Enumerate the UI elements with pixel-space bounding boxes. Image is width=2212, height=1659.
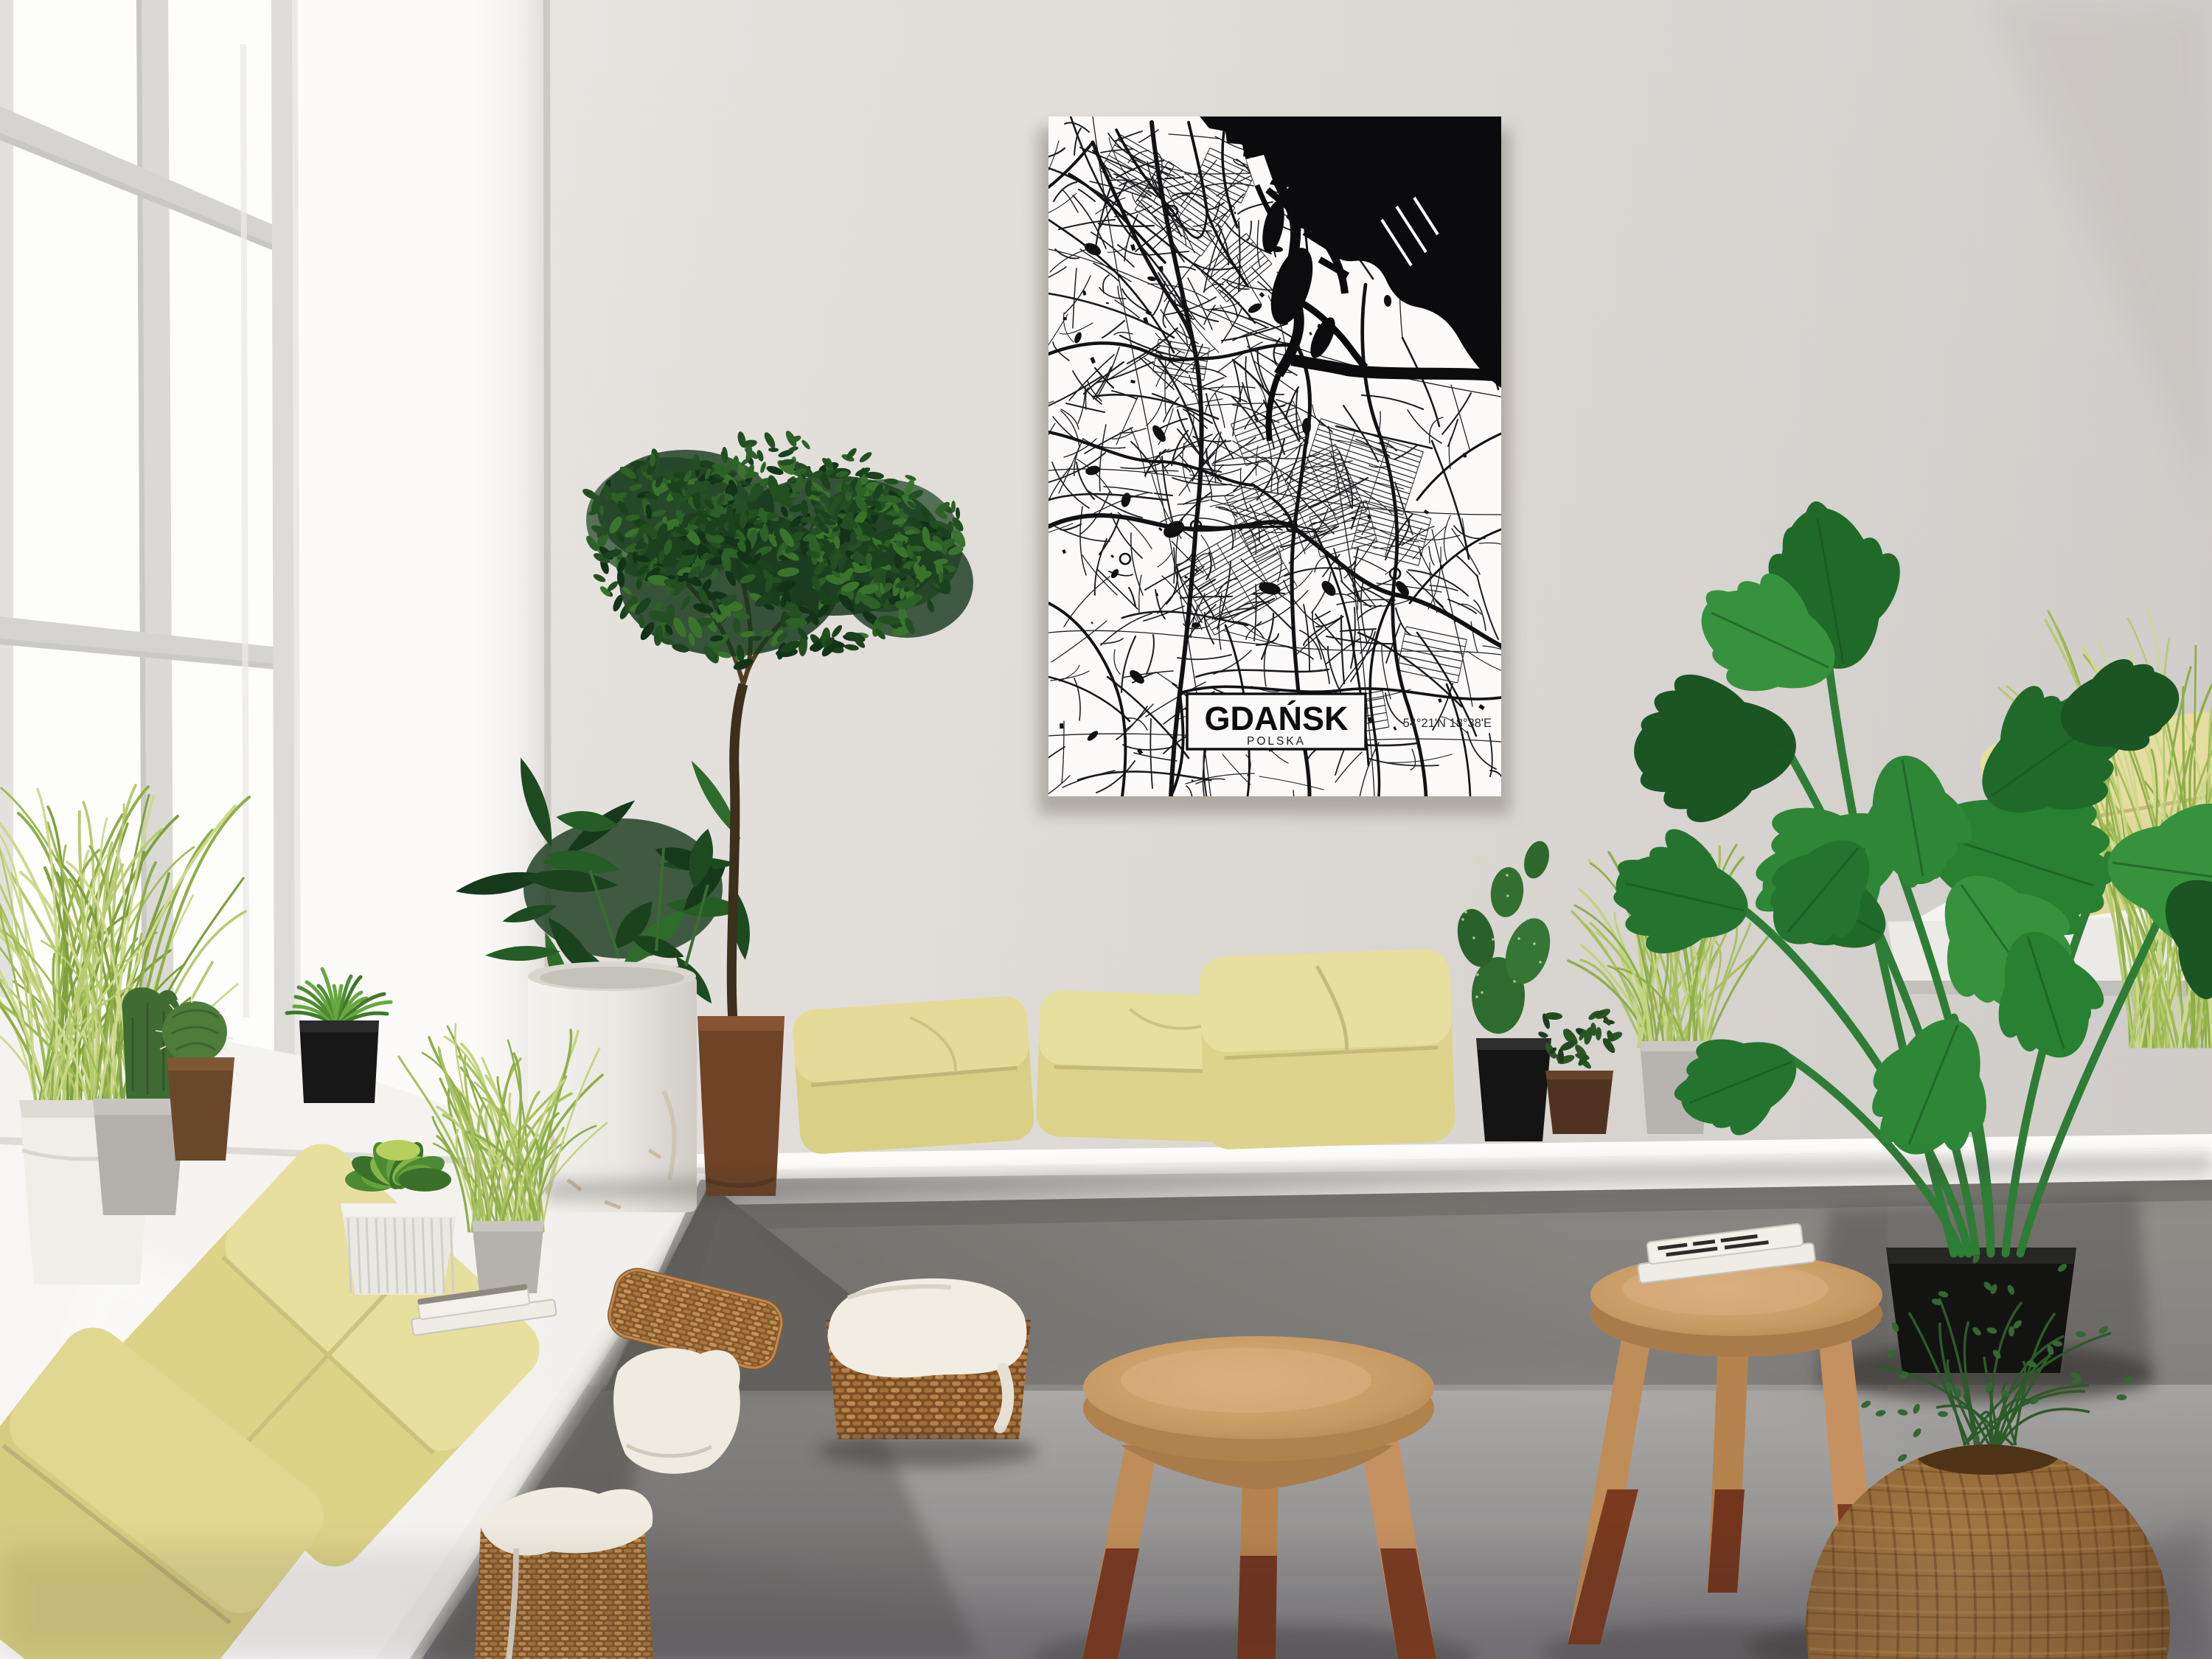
- svg-text:54°21'N 18°38'E: 54°21'N 18°38'E: [1403, 717, 1492, 730]
- svg-text:POLSKA: POLSKA: [1247, 735, 1306, 748]
- svg-text:GDAŃSK: GDAŃSK: [1204, 700, 1349, 737]
